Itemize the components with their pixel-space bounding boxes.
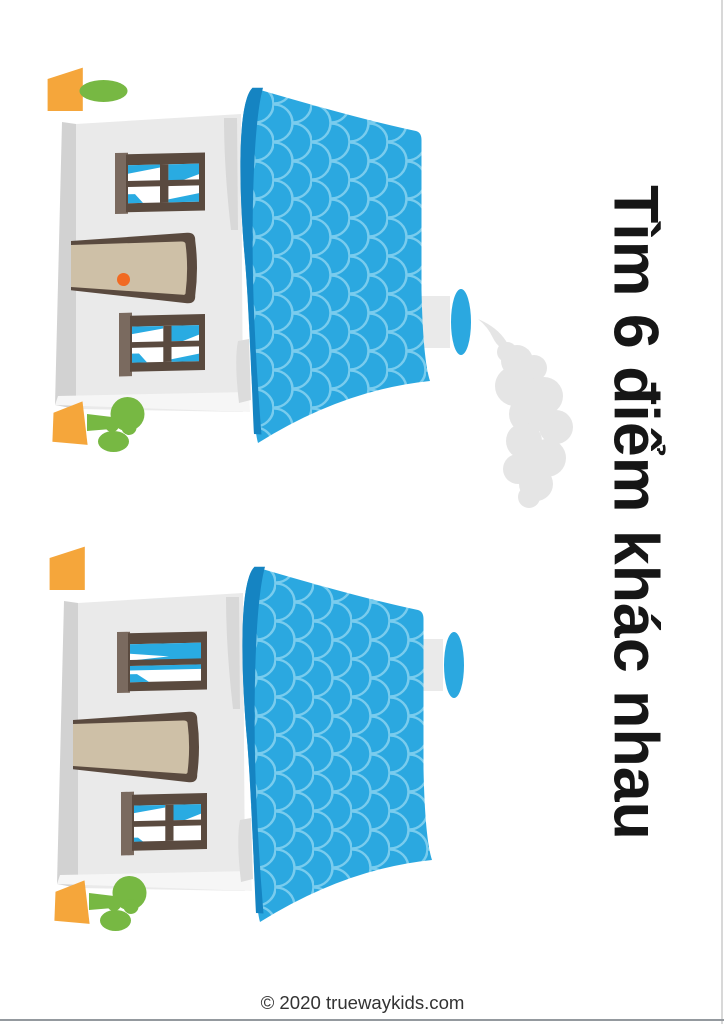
svg-text:© 2020 truewaykids.com: © 2020 truewaykids.com <box>261 992 465 1013</box>
svg-text:Tìm 6 điểm khác nhau: Tìm 6 điểm khác nhau <box>601 185 671 840</box>
